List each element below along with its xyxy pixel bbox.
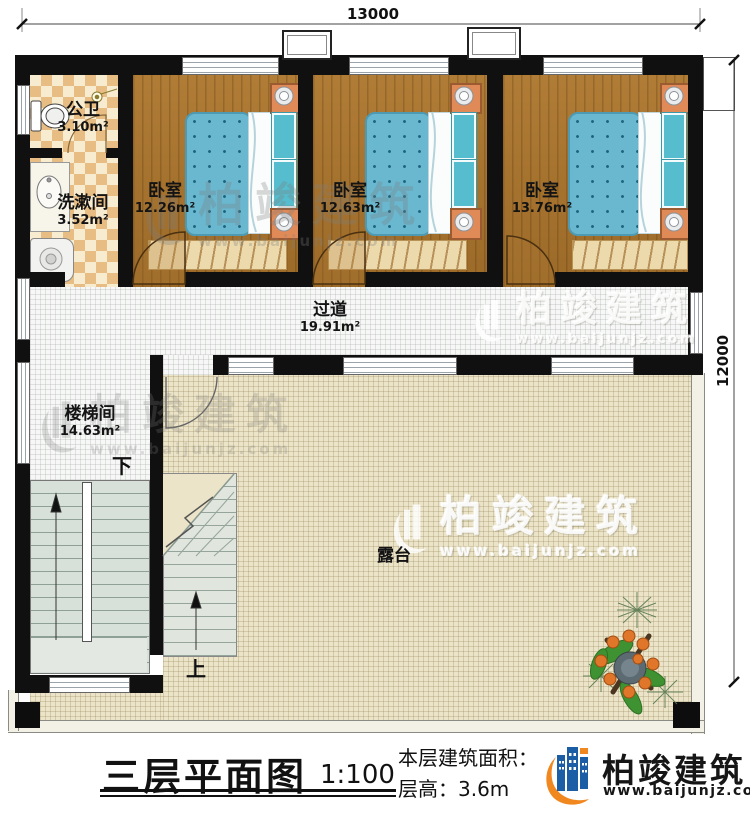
nightstand-icon <box>450 208 482 240</box>
wall <box>487 75 503 287</box>
wall <box>106 148 118 158</box>
title-underline <box>100 795 396 797</box>
wall <box>30 148 62 158</box>
bed-side-shelf <box>272 113 296 160</box>
stairs-up-label: 上 <box>186 653 206 682</box>
room-label-bath: 公卫 3.10m² <box>57 101 108 135</box>
window <box>690 292 703 354</box>
flue-shaft <box>467 27 521 60</box>
floor-area-label: 本层建筑面积： <box>398 742 538 771</box>
bed-side-shelf <box>662 113 686 160</box>
bed-icon <box>185 112 252 236</box>
stairs-down-label: 下 <box>112 450 132 479</box>
stair-winder <box>163 473 237 657</box>
terrace-railing-right <box>691 373 705 734</box>
bed-icon <box>365 112 432 236</box>
room-label-bedroom-2: 卧室 12.63m² <box>320 182 380 216</box>
wall <box>150 375 163 655</box>
wall <box>298 75 313 287</box>
bay-window <box>703 57 735 111</box>
drawing-scale: 1:100 <box>320 760 395 790</box>
nightstand-icon <box>450 83 482 114</box>
bed-icon <box>568 112 642 236</box>
bed-side-shelf <box>452 160 476 208</box>
room-label-terrace: 露台 <box>377 547 411 567</box>
bed-side-shelf <box>272 160 296 208</box>
title-underline <box>100 789 396 792</box>
terrace-railing-bottom <box>8 720 704 733</box>
brand-url: www.baijunjz.com <box>603 783 750 799</box>
room-label-wash: 洗漱间 3.52m² <box>57 194 108 228</box>
room-label-bedroom-1: 卧室 12.26m² <box>135 182 195 216</box>
window <box>17 278 30 340</box>
rug <box>572 240 688 270</box>
dimension-top-value: 13000 <box>338 5 408 23</box>
bed-blanket <box>428 112 452 234</box>
terrace-door-opening <box>163 355 213 375</box>
window <box>182 57 279 75</box>
rug <box>148 240 287 270</box>
floor-plan-canvas: 柏竣建筑 www.baijunjz.com 柏竣建筑 www.baijunjz.… <box>0 0 750 813</box>
flue-shaft <box>282 30 332 60</box>
room-label-bedroom-3: 卧室 13.76m² <box>512 182 572 216</box>
bed-blanket <box>638 112 662 234</box>
window <box>17 85 30 135</box>
wall <box>555 272 703 287</box>
railing-post-right <box>673 702 700 728</box>
window <box>343 357 457 375</box>
railing-post-left <box>15 702 40 728</box>
terrace-floor-strip <box>30 693 163 722</box>
bed-side-shelf <box>452 113 476 160</box>
stair-landing <box>31 637 147 672</box>
page-title: 三层平面图 <box>102 746 307 801</box>
window <box>49 677 130 693</box>
wall <box>185 272 313 287</box>
wall <box>365 272 503 287</box>
room-label-corridor: 过道 19.91m² <box>300 301 360 335</box>
brand-logo-icon <box>540 739 600 807</box>
window <box>228 357 274 375</box>
bed-blanket <box>248 112 272 234</box>
wall <box>118 75 133 287</box>
window <box>551 357 634 375</box>
window <box>349 57 449 75</box>
bed-side-shelf <box>662 160 686 208</box>
stair-center-rail <box>82 482 92 642</box>
rug <box>328 240 467 270</box>
dimension-right-value: 12000 <box>714 326 732 396</box>
terrace-floor <box>163 375 691 722</box>
floor-height-label: 层高：3.6m <box>398 773 509 802</box>
window <box>543 57 643 75</box>
room-label-stairwell: 楼梯间 14.63m² <box>60 405 120 439</box>
window <box>17 362 30 464</box>
